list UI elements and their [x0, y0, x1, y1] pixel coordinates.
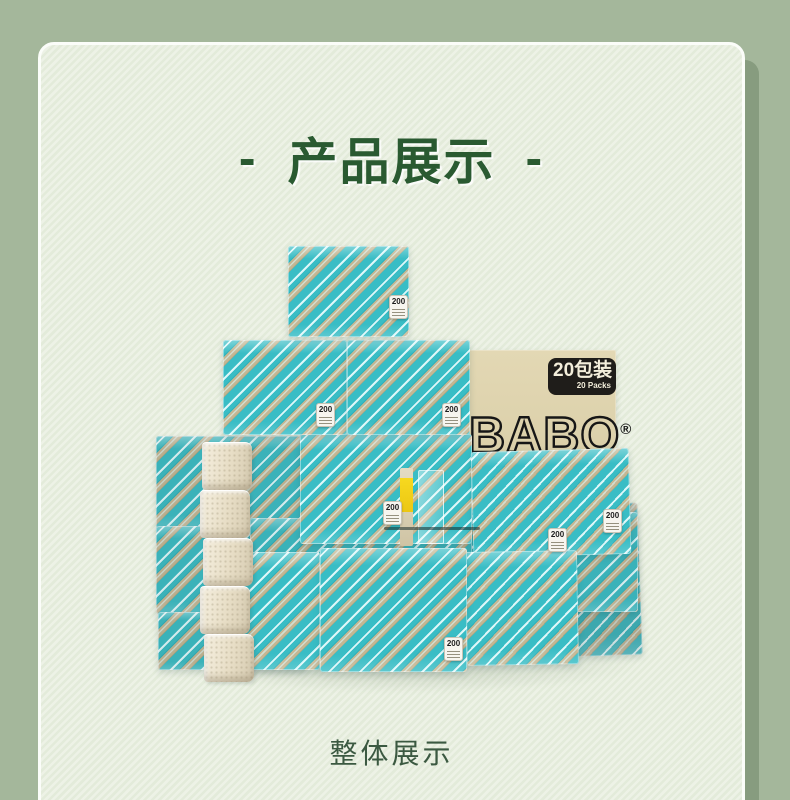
label-fineprint: [392, 308, 405, 316]
sheet-count-text: 200: [445, 406, 458, 414]
label-fineprint: [447, 650, 460, 658]
label-fineprint: [386, 514, 399, 522]
sheet-count-text: 200: [447, 640, 460, 648]
page-background: - 产品展示 - 20包装 20 Packs BABO®: [0, 0, 790, 800]
sheet-count-label: 200: [548, 528, 567, 552]
tissue-end-cap: [200, 586, 250, 634]
sheet-count-text: 200: [606, 512, 619, 520]
sheet-count-label: 200: [383, 501, 402, 525]
sheet-count-text: 200: [319, 406, 332, 414]
product-photo: 20包装 20 Packs BABO®: [0, 0, 790, 800]
section-caption: 整体展示: [38, 732, 745, 772]
pack-seam: [384, 527, 480, 530]
tissue-end-cap: [204, 634, 254, 682]
tissue-pack: [288, 246, 409, 337]
sheet-count-label: 200: [442, 403, 461, 427]
sheet-count-text: 200: [551, 531, 564, 539]
registered-mark: ®: [620, 421, 631, 438]
sheet-count-label: 200: [389, 295, 408, 319]
tissue-pack: [465, 550, 579, 666]
sheet-count-label: 200: [316, 403, 335, 427]
label-fineprint: [551, 541, 564, 549]
plastic-wrap-edge: [418, 470, 444, 544]
tissue-end-cap: [200, 490, 250, 538]
sheet-count-text: 200: [392, 298, 405, 306]
label-fineprint: [606, 522, 619, 530]
label-fineprint: [319, 416, 332, 424]
tissue-end-cap: [203, 538, 253, 586]
pack-count-badge: 20包装 20 Packs: [548, 358, 616, 395]
sheet-count-text: 200: [386, 504, 399, 512]
badge-secondary-text: 20 Packs: [553, 381, 611, 390]
sheet-count-label: 200: [444, 637, 463, 661]
tissue-end-cap: [202, 442, 252, 490]
sheet-count-label: 200: [603, 509, 622, 533]
badge-primary-text: 20包装: [553, 360, 611, 381]
label-fineprint: [445, 416, 458, 424]
